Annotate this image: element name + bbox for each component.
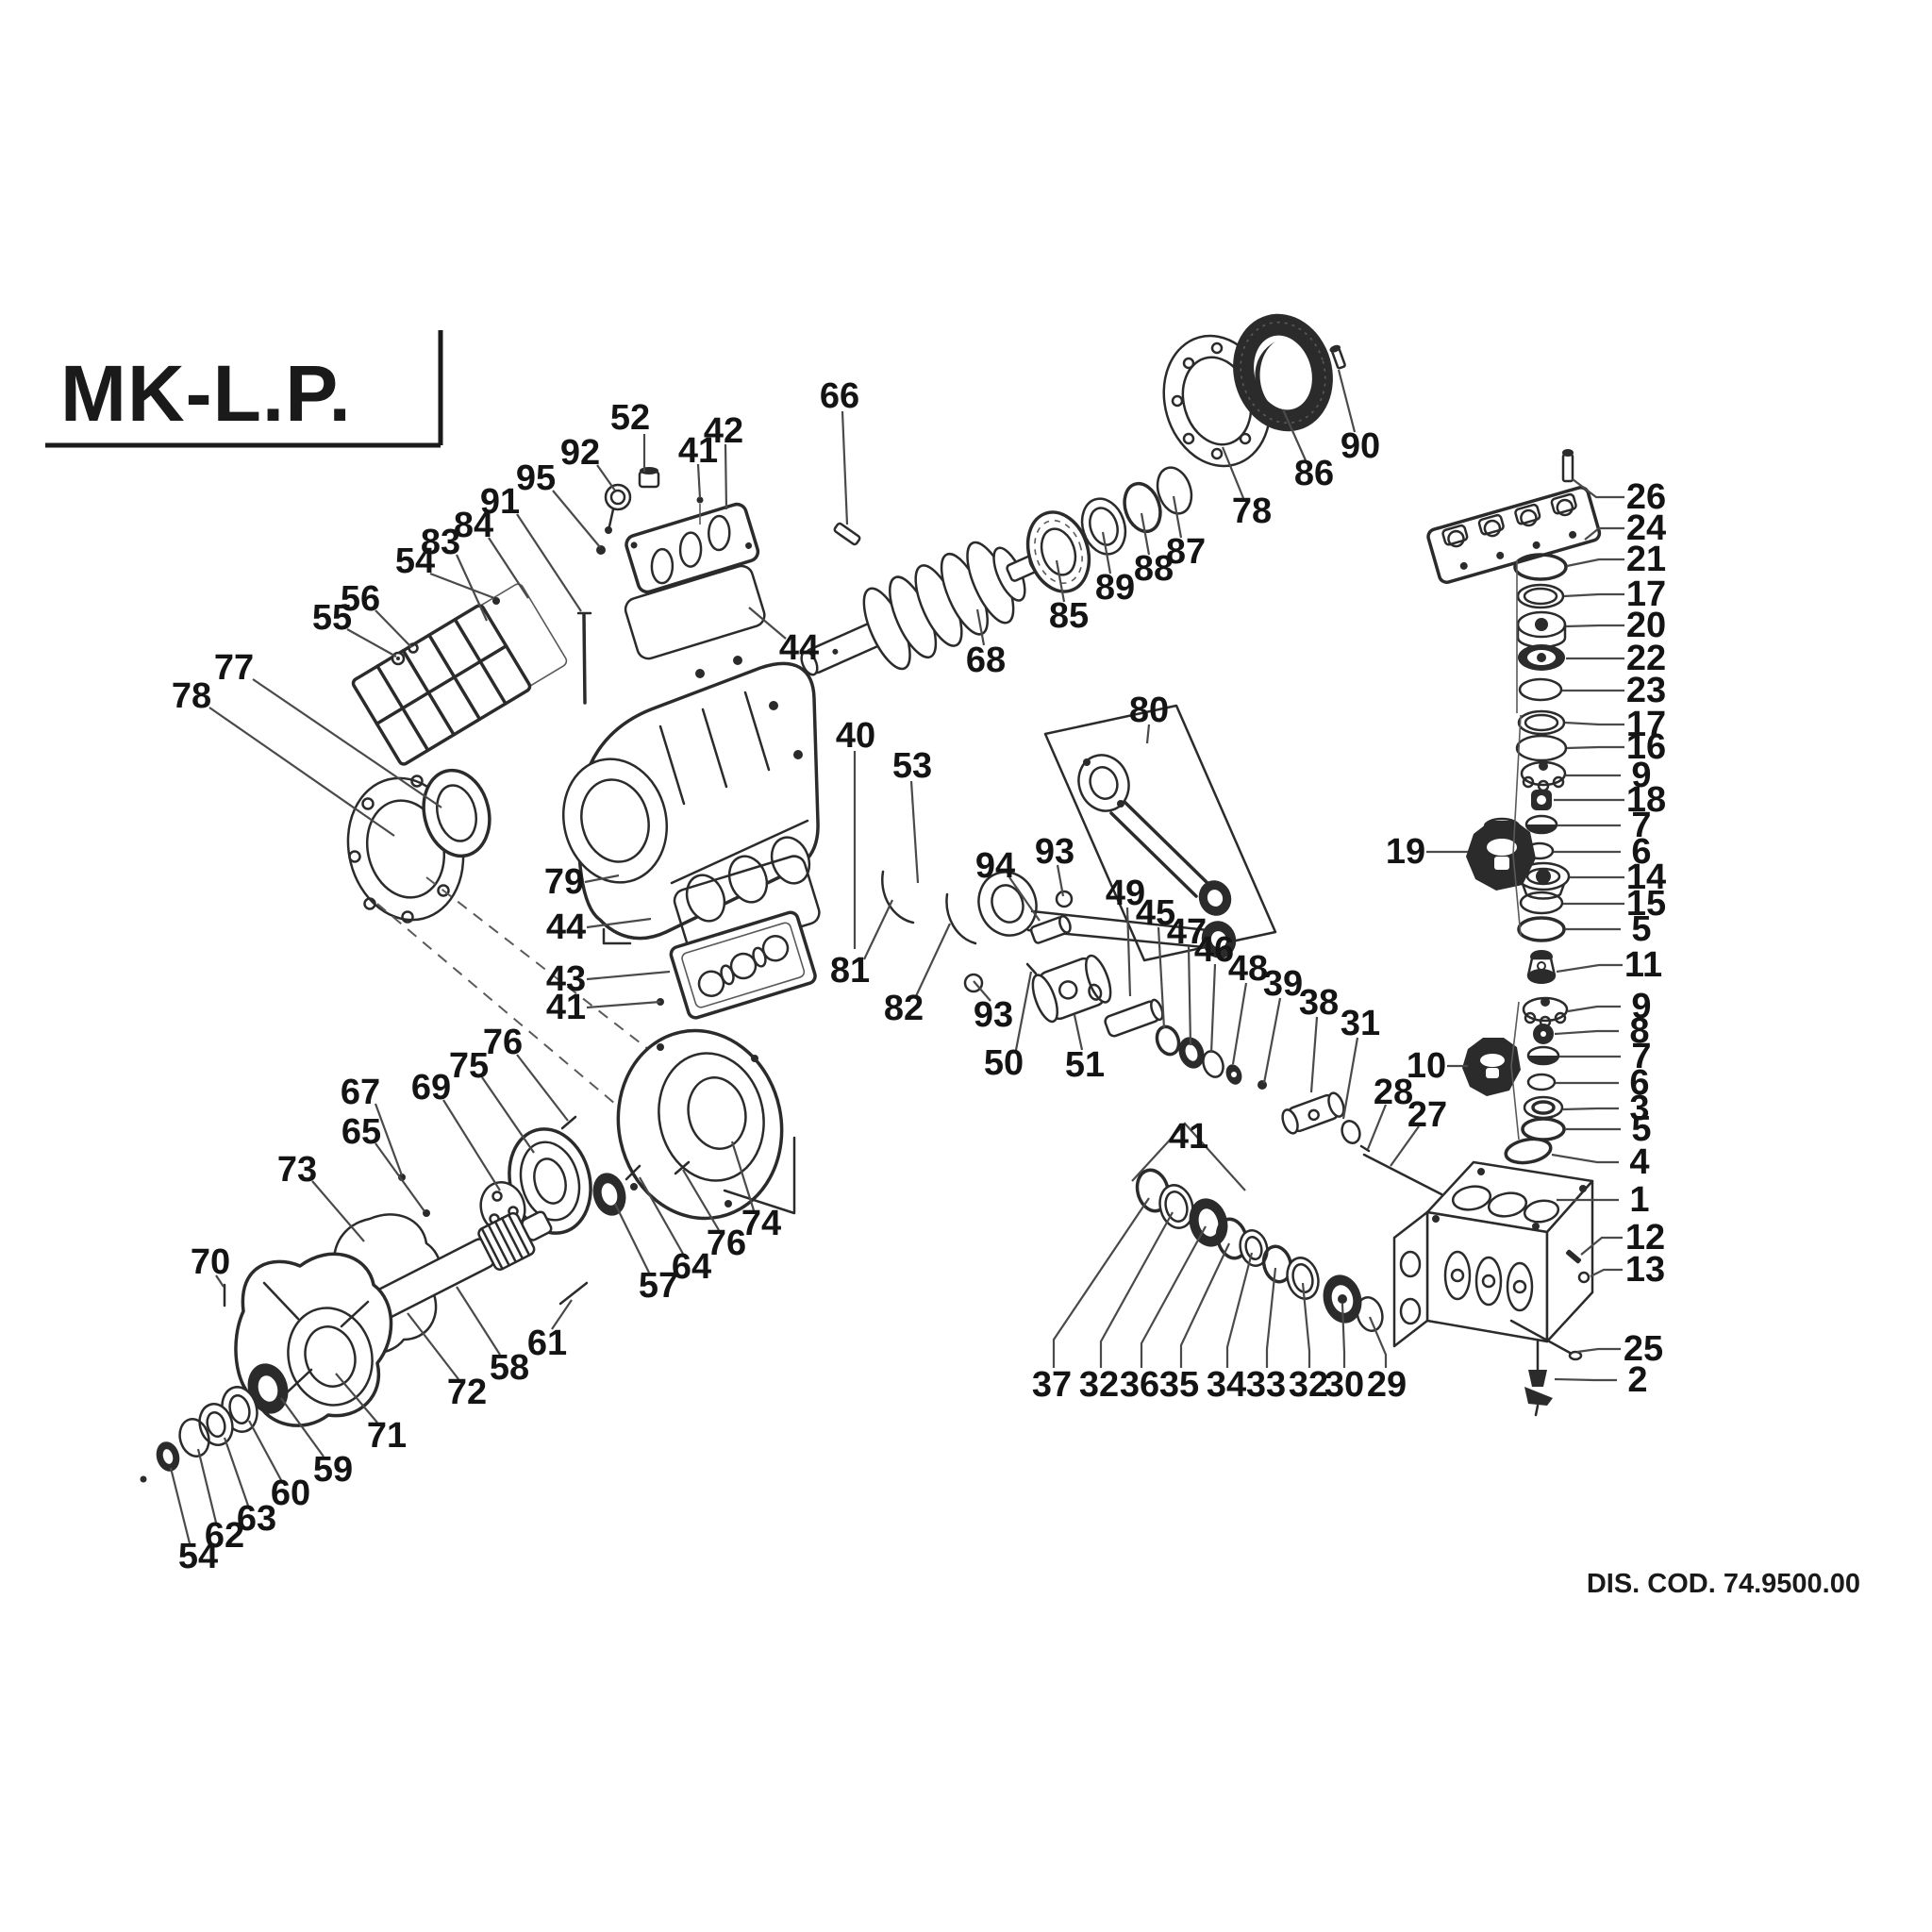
leader-line-8	[1555, 1031, 1619, 1034]
title-block: MK-L.P.	[45, 330, 441, 445]
part-label-77: 77	[214, 648, 254, 688]
part-label-41: 41	[1169, 1117, 1208, 1157]
leader-line-56	[375, 610, 411, 647]
part-label-29: 29	[1367, 1365, 1407, 1405]
part-label-67: 67	[341, 1073, 380, 1112]
plunger-sleeve	[1280, 1091, 1347, 1135]
part-label-68: 68	[966, 641, 1006, 680]
part-label-76: 76	[483, 1023, 523, 1062]
diagram-canvas: MK-L.P. DIS. COD. 74.9500.00	[0, 0, 1932, 1932]
leader-line-31	[1343, 1038, 1357, 1119]
plunger-washer	[1224, 1062, 1245, 1087]
leader-line-3	[1563, 1108, 1619, 1109]
part-label-58: 58	[490, 1348, 529, 1388]
leader-line-90	[1339, 370, 1355, 432]
bell-housing	[601, 1015, 799, 1233]
part-label-38: 38	[1299, 983, 1339, 1023]
part-label-44: 44	[546, 908, 586, 947]
part-label-10: 10	[1407, 1046, 1446, 1086]
plunger-oring	[1154, 1024, 1183, 1058]
leader-line-17	[1565, 723, 1624, 724]
valve-stack-lower	[1523, 997, 1567, 1140]
part-label-37: 37	[1032, 1365, 1072, 1405]
part-label-39: 39	[1263, 964, 1303, 1004]
leader-line-78	[209, 708, 394, 836]
leader-line-50	[1016, 972, 1031, 1050]
leader-line-38	[1311, 1017, 1317, 1092]
leader-line-66	[842, 411, 847, 525]
leader-line-17	[1564, 594, 1624, 596]
leader-line-13	[1591, 1270, 1623, 1276]
leader-line-63	[225, 1438, 248, 1506]
part-label-80: 80	[1129, 691, 1169, 730]
spring-retainer	[1527, 950, 1556, 984]
grid-plate	[352, 604, 532, 766]
part-label-42: 42	[704, 411, 743, 451]
leader-line-46	[1211, 964, 1215, 1053]
pump-manifold	[1394, 1162, 1592, 1346]
leader-line-20	[1566, 625, 1624, 626]
part-label-53: 53	[892, 746, 932, 786]
leader-line-29	[1370, 1317, 1386, 1368]
leader-line-95	[553, 491, 600, 547]
crankshaft	[786, 521, 1058, 705]
part-label-30: 30	[1324, 1365, 1364, 1405]
part-label-60: 60	[271, 1474, 310, 1513]
leader-line-53	[911, 781, 918, 883]
part-label-95: 95	[516, 458, 556, 498]
leader-line-9	[1568, 1007, 1621, 1011]
plate-pin	[1562, 449, 1574, 481]
leader-line-21	[1567, 559, 1624, 566]
part-label-52: 52	[610, 398, 650, 438]
part-label-41: 41	[546, 988, 586, 1027]
part-label-51: 51	[1065, 1045, 1105, 1085]
part-label-86: 86	[1294, 454, 1334, 493]
retainer-pin-a	[562, 1117, 575, 1128]
part-label-35: 35	[1159, 1365, 1199, 1405]
part-label-32: 32	[1079, 1365, 1119, 1405]
leader-line-73	[312, 1181, 364, 1241]
leader-line-2	[1555, 1379, 1617, 1380]
part-label-70: 70	[191, 1242, 230, 1282]
part-label-5: 5	[1631, 909, 1651, 949]
part-label-79: 79	[544, 862, 584, 902]
part-label-40: 40	[836, 716, 875, 756]
drawing-code: DIS. COD. 74.9500.00	[1587, 1569, 1860, 1599]
part-label-50: 50	[984, 1043, 1024, 1083]
page-title: MK-L.P.	[60, 349, 352, 438]
part-label-32: 32	[1289, 1365, 1328, 1405]
seal-row	[1133, 1167, 1386, 1334]
part-label-78: 78	[172, 676, 211, 716]
leader-line-41	[587, 1002, 660, 1008]
part-label-71: 71	[367, 1416, 407, 1456]
part-label-19: 19	[1386, 832, 1425, 872]
drain-valve	[1524, 1341, 1553, 1415]
shaft-pin	[560, 1283, 587, 1304]
part-label-89: 89	[1095, 568, 1135, 608]
part-label-72: 72	[447, 1373, 487, 1412]
leader-line-76	[517, 1055, 568, 1121]
leader-line-42	[725, 444, 726, 509]
leader-line-34	[1227, 1253, 1252, 1368]
rod-bearing-shells	[882, 872, 975, 943]
leader-line-36	[1141, 1226, 1206, 1368]
part-label-54: 54	[395, 541, 435, 581]
part-label-55: 55	[312, 598, 352, 638]
leader-line-48	[1233, 983, 1246, 1064]
part-label-11: 11	[1624, 945, 1662, 985]
leader-line-25	[1577, 1349, 1621, 1352]
leader-line-82	[916, 924, 950, 996]
part-label-34: 34	[1207, 1365, 1246, 1405]
part-label-90: 90	[1341, 426, 1380, 466]
part-label-33: 33	[1246, 1365, 1286, 1405]
part-label-74: 74	[741, 1204, 781, 1243]
drive-seal-row	[141, 1358, 294, 1482]
part-label-94: 94	[975, 846, 1015, 886]
part-label-31: 31	[1341, 1004, 1380, 1043]
part-label-93: 93	[1035, 832, 1074, 872]
part-label-59: 59	[313, 1450, 353, 1490]
part-label-1: 1	[1629, 1180, 1649, 1220]
leader-line-55	[347, 629, 396, 657]
leader-line-65	[375, 1143, 425, 1211]
dipstick-rod	[578, 613, 591, 703]
leader-line-43	[587, 972, 670, 979]
leader-line-11	[1557, 965, 1623, 972]
crankcase	[551, 656, 818, 943]
leader-line-54	[171, 1468, 190, 1543]
part-label-93: 93	[974, 995, 1013, 1035]
leader-line-69	[443, 1100, 500, 1191]
oil-cap	[640, 467, 658, 487]
sleeve-oring	[1339, 1119, 1362, 1146]
part-label-85: 85	[1049, 596, 1089, 636]
leader-line-33	[1267, 1268, 1275, 1368]
part-label-87: 87	[1166, 532, 1206, 572]
part-label-54: 54	[178, 1537, 218, 1576]
stud-bolt	[1361, 1146, 1441, 1194]
piston-pin	[1030, 915, 1073, 944]
crankshaft-key	[834, 523, 861, 545]
valve-grid-plate	[669, 910, 817, 1020]
part-label-66: 66	[820, 376, 859, 416]
part-label-82: 82	[884, 989, 924, 1028]
dipstick-ball	[596, 545, 606, 555]
part-label-27: 27	[1407, 1095, 1447, 1135]
part-label-13: 13	[1625, 1250, 1665, 1290]
part-label-65: 65	[341, 1112, 381, 1152]
leader-line-35	[1181, 1243, 1229, 1368]
part-label-44: 44	[779, 628, 819, 668]
crosshead-piston	[1028, 953, 1116, 1024]
leader-line-54	[430, 574, 494, 598]
part-label-69: 69	[411, 1068, 451, 1108]
leader-line-75	[482, 1077, 534, 1153]
shaft-seal	[589, 1169, 631, 1219]
plunger-rod	[1104, 998, 1165, 1038]
part-label-78: 78	[1232, 491, 1272, 531]
small-spacer	[1257, 1080, 1267, 1090]
part-label-76: 76	[707, 1224, 746, 1263]
leader-line-57	[615, 1204, 649, 1273]
part-label-36: 36	[1120, 1365, 1159, 1405]
part-label-81: 81	[830, 951, 870, 991]
oil-level-indicator	[605, 485, 630, 534]
part-label-92: 92	[560, 433, 600, 473]
pin-circlip-a	[1057, 891, 1072, 907]
leader-line-62	[198, 1449, 216, 1523]
part-label-2: 2	[1627, 1360, 1647, 1400]
part-label-21: 21	[1626, 540, 1666, 579]
part-label-57: 57	[639, 1266, 678, 1306]
leader-line-58	[457, 1287, 500, 1355]
part-label-4: 4	[1629, 1142, 1649, 1182]
part-label-61: 61	[527, 1324, 567, 1363]
part-label-73: 73	[277, 1150, 317, 1190]
leader-line-4	[1552, 1155, 1619, 1162]
leader-line-60	[249, 1421, 281, 1480]
leader-line-32	[1101, 1212, 1173, 1368]
diagram-page: MK-L.P. DIS. COD. 74.9500.00	[0, 0, 1932, 1932]
part-label-48: 48	[1228, 949, 1268, 989]
leader-line-39	[1264, 998, 1280, 1083]
leader-line-16	[1567, 747, 1624, 748]
leader-line-47	[1189, 946, 1191, 1045]
